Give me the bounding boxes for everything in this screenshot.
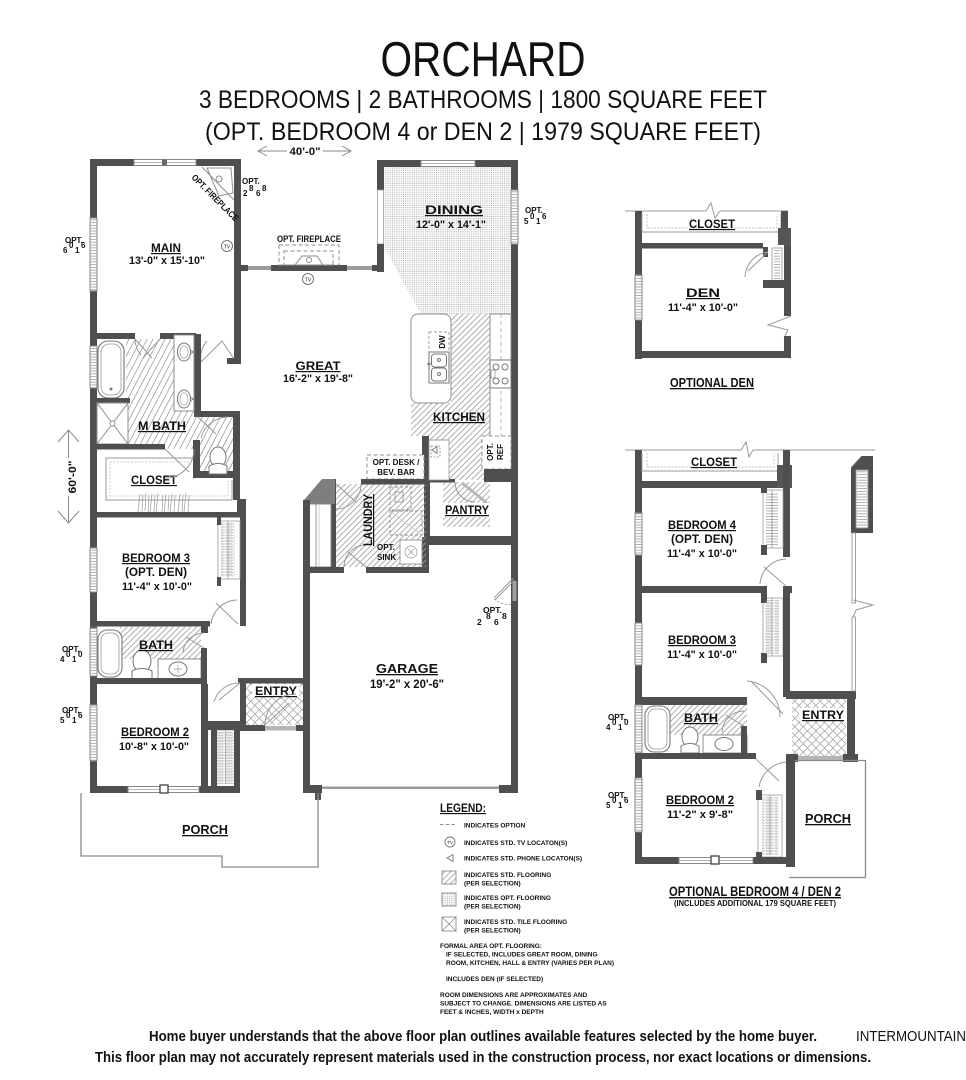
svg-text:0: 0 xyxy=(78,650,83,659)
svg-text:BATH: BATH xyxy=(139,638,173,652)
svg-text:4: 4 xyxy=(60,655,65,664)
svg-text:PORCH: PORCH xyxy=(805,811,851,826)
svg-text:0: 0 xyxy=(624,718,629,727)
svg-text:BATH: BATH xyxy=(684,711,718,725)
svg-text:6: 6 xyxy=(624,796,629,805)
svg-text:0: 0 xyxy=(612,718,617,727)
svg-text:6: 6 xyxy=(256,189,261,198)
svg-text:ROOM, KITCHEN, HALL & ENTRY (V: ROOM, KITCHEN, HALL & ENTRY (VARIES PER … xyxy=(446,960,614,967)
svg-text:PORCH: PORCH xyxy=(182,822,228,837)
svg-text:6: 6 xyxy=(78,711,83,720)
svg-text:11'-4" x 10'-0": 11'-4" x 10'-0" xyxy=(667,548,737,560)
svg-text:(OPT. DEN): (OPT. DEN) xyxy=(125,565,187,579)
svg-text:1: 1 xyxy=(536,217,541,226)
svg-text:SUBJECT TO CHANGE. DIMENSIONS: SUBJECT TO CHANGE. DIMENSIONS ARE LISTED… xyxy=(440,1001,607,1008)
svg-text:INDICATES OPT. FLOORING: INDICATES OPT. FLOORING xyxy=(464,895,551,902)
svg-text:REF: REF xyxy=(496,444,505,460)
svg-text:1: 1 xyxy=(72,716,77,725)
svg-text:BEDROOM 4: BEDROOM 4 xyxy=(668,518,736,532)
svg-text:DEN: DEN xyxy=(686,286,720,300)
svg-text:11'-4" x 10'-0": 11'-4" x 10'-0" xyxy=(668,302,738,314)
svg-text:INDICATES STD. PHONE LOCATON(S: INDICATES STD. PHONE LOCATON(S) xyxy=(464,856,582,863)
svg-text:5: 5 xyxy=(606,801,611,810)
svg-text:5: 5 xyxy=(524,217,529,226)
svg-text:SINK: SINK xyxy=(377,553,396,562)
svg-text:4: 4 xyxy=(606,723,611,732)
svg-text:INDICATES STD. TV LOCATON(S): INDICATES STD. TV LOCATON(S) xyxy=(464,840,567,847)
svg-text:ORCHARD: ORCHARD xyxy=(381,33,586,87)
svg-text:BEDROOM 3: BEDROOM 3 xyxy=(668,633,736,647)
svg-text:FORMAL AREA OPT. FLOORING:: FORMAL AREA OPT. FLOORING: xyxy=(440,943,542,950)
svg-text:OPT. FIREPLACE: OPT. FIREPLACE xyxy=(277,234,341,244)
svg-text:(OPT. BEDROOM 4 or DEN 2 | 197: (OPT. BEDROOM 4 or DEN 2 | 1979 SQUARE F… xyxy=(205,118,761,146)
svg-text:0: 0 xyxy=(69,241,74,250)
svg-text:5: 5 xyxy=(60,716,65,725)
svg-text:DW: DW xyxy=(438,335,447,349)
svg-text:TV: TV xyxy=(447,840,453,845)
svg-text:GARAGE: GARAGE xyxy=(376,661,438,676)
svg-text:FEET & INCHES, WIDTH x DEPTH: FEET & INCHES, WIDTH x DEPTH xyxy=(440,1009,544,1016)
svg-text:40'-0": 40'-0" xyxy=(290,146,321,158)
svg-text:2: 2 xyxy=(243,189,248,198)
svg-text:11'-4" x 10'-0": 11'-4" x 10'-0" xyxy=(122,581,192,593)
svg-text:10'-8" x 10'-0": 10'-8" x 10'-0" xyxy=(119,741,189,753)
svg-text:OPT.: OPT. xyxy=(377,543,395,552)
svg-text:ROOM DIMENSIONS ARE APPROXIMAT: ROOM DIMENSIONS ARE APPROXIMATES AND xyxy=(440,992,588,999)
svg-text:0: 0 xyxy=(66,711,71,720)
svg-text:1: 1 xyxy=(618,801,623,810)
svg-text:LAUNDRY: LAUNDRY xyxy=(361,494,375,546)
svg-text:MAIN: MAIN xyxy=(151,241,181,255)
svg-text:0: 0 xyxy=(612,796,617,805)
svg-text:OPTIONAL DEN: OPTIONAL DEN xyxy=(670,375,754,390)
svg-text:(OPT. DEN): (OPT. DEN) xyxy=(671,532,733,546)
svg-text:6: 6 xyxy=(63,246,68,255)
svg-text:ENTRY: ENTRY xyxy=(802,708,844,722)
svg-text:INDICATES STD. FLOORING: INDICATES STD. FLOORING xyxy=(464,872,551,879)
svg-text:DINING: DINING xyxy=(425,203,483,217)
svg-text:BEV. BAR: BEV. BAR xyxy=(377,468,415,477)
svg-text:(PER SELECTION): (PER SELECTION) xyxy=(464,928,521,935)
svg-text:ENTRY: ENTRY xyxy=(255,684,297,698)
svg-text:8: 8 xyxy=(249,184,254,193)
svg-text:8: 8 xyxy=(486,611,491,621)
svg-text:INTERMOUNTAIN: INTERMOUNTAIN xyxy=(856,1028,966,1045)
svg-text:16'-2" x 19'-8": 16'-2" x 19'-8" xyxy=(283,373,353,385)
svg-text:11'-4" x 10'-0": 11'-4" x 10'-0" xyxy=(667,649,737,661)
svg-text:0: 0 xyxy=(66,650,71,659)
svg-text:TV: TV xyxy=(224,245,231,251)
svg-text:This floor plan may not accura: This floor plan may not accurately repre… xyxy=(95,1049,871,1066)
svg-text:OPT. DESK /: OPT. DESK / xyxy=(373,458,420,467)
svg-text:12'-0" x 14'-1": 12'-0" x 14'-1" xyxy=(416,219,486,231)
svg-text:OPT.: OPT. xyxy=(486,443,495,461)
svg-text:INDICATES STD. TILE FLOORING: INDICATES STD. TILE FLOORING xyxy=(464,919,567,926)
svg-text:CLOSET: CLOSET xyxy=(131,475,177,487)
svg-text:13'-0" x 15'-10": 13'-0" x 15'-10" xyxy=(129,255,205,267)
svg-text:(PER SELECTION): (PER SELECTION) xyxy=(464,904,521,911)
svg-text:0: 0 xyxy=(530,212,535,221)
svg-text:(PER SELECTION): (PER SELECTION) xyxy=(464,881,521,888)
svg-text:CLOSET: CLOSET xyxy=(689,219,735,231)
svg-text:KITCHEN: KITCHEN xyxy=(433,410,485,424)
svg-text:2: 2 xyxy=(477,617,482,627)
svg-text:CLOSET: CLOSET xyxy=(691,457,737,469)
svg-text:8: 8 xyxy=(502,611,507,621)
svg-text:1: 1 xyxy=(75,246,80,255)
svg-text:1: 1 xyxy=(618,723,623,732)
svg-text:6: 6 xyxy=(81,241,86,250)
svg-text:8: 8 xyxy=(262,184,267,193)
svg-text:Home buyer understands that th: Home buyer understands that the above fl… xyxy=(149,1028,817,1045)
svg-text:6: 6 xyxy=(542,212,547,221)
svg-text:11'-2" x 9'-8": 11'-2" x 9'-8" xyxy=(667,809,733,821)
svg-text:PANTRY: PANTRY xyxy=(445,503,489,517)
svg-text:INDICATES OPTION: INDICATES OPTION xyxy=(464,823,526,830)
svg-text:3 BEDROOMS | 2 BATHROOMS | 180: 3 BEDROOMS | 2 BATHROOMS | 1800 SQUARE F… xyxy=(199,86,767,114)
svg-text:60'-0": 60'-0" xyxy=(67,461,79,494)
svg-text:19'-2" x 20'-6": 19'-2" x 20'-6" xyxy=(370,677,444,691)
svg-text:OPTIONAL BEDROOM 4 / DEN 2: OPTIONAL BEDROOM 4 / DEN 2 xyxy=(669,883,841,899)
svg-text:IF SELECTED, INCLUDES GREAT RO: IF SELECTED, INCLUDES GREAT ROOM, DINING xyxy=(446,952,598,959)
svg-text:1: 1 xyxy=(72,655,77,664)
svg-text:INCLUDES DEN (IF SELECTED): INCLUDES DEN (IF SELECTED) xyxy=(446,976,543,983)
svg-text:BEDROOM 2: BEDROOM 2 xyxy=(121,725,189,739)
svg-text:TV: TV xyxy=(305,278,312,284)
svg-text:LEGEND:: LEGEND: xyxy=(440,803,486,815)
svg-text:BEDROOM 3: BEDROOM 3 xyxy=(122,551,190,565)
svg-text:(INCLUDES ADDITIONAL 179 SQUAR: (INCLUDES ADDITIONAL 179 SQUARE FEET) xyxy=(674,898,836,908)
svg-text:GREAT: GREAT xyxy=(296,359,342,373)
svg-text:BEDROOM 2: BEDROOM 2 xyxy=(666,793,734,807)
svg-text:M BATH: M BATH xyxy=(138,419,186,433)
svg-text:6: 6 xyxy=(494,617,499,627)
